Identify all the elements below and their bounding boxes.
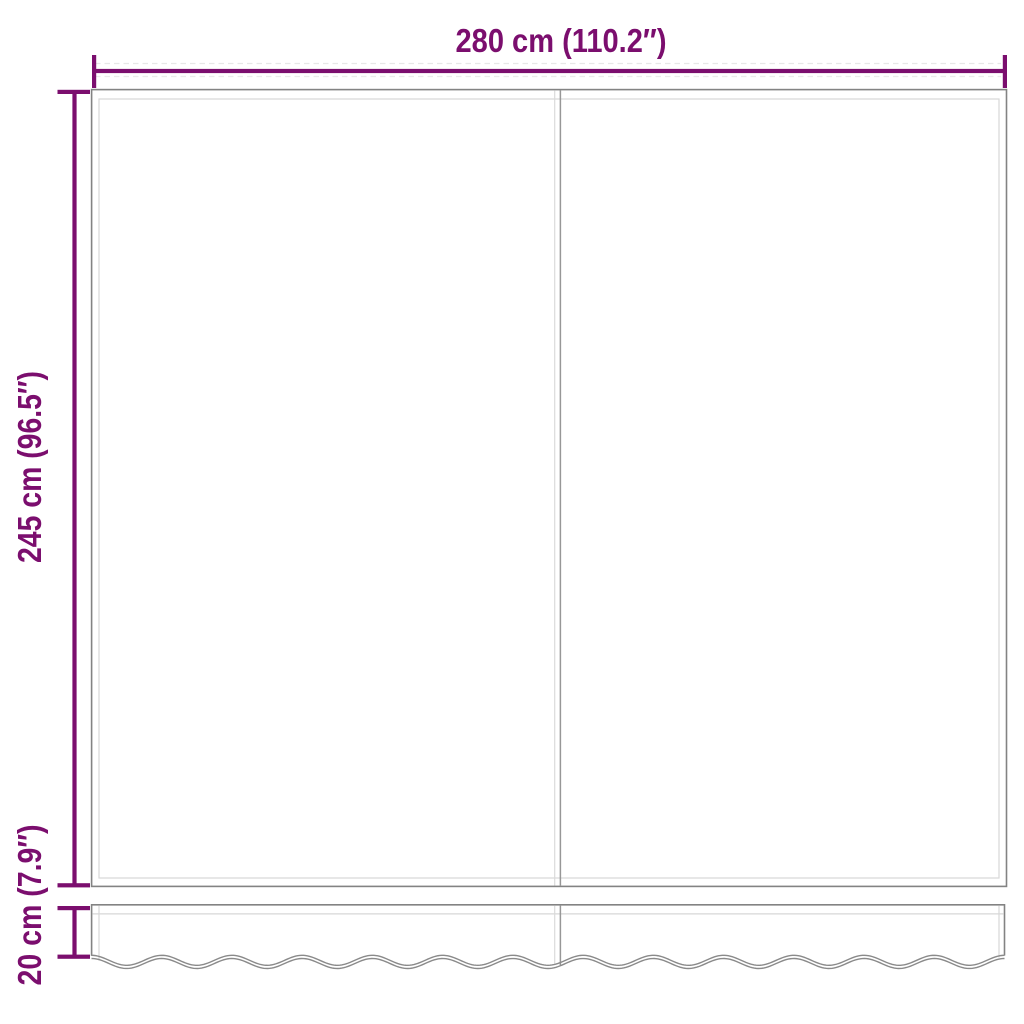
svg-text:245 cm (96.5″): 245 cm (96.5″) [12,371,49,563]
svg-text:20 cm (7.9″): 20 cm (7.9″) [12,825,49,986]
svg-text:280 cm (110.2″): 280 cm (110.2″) [456,23,667,60]
